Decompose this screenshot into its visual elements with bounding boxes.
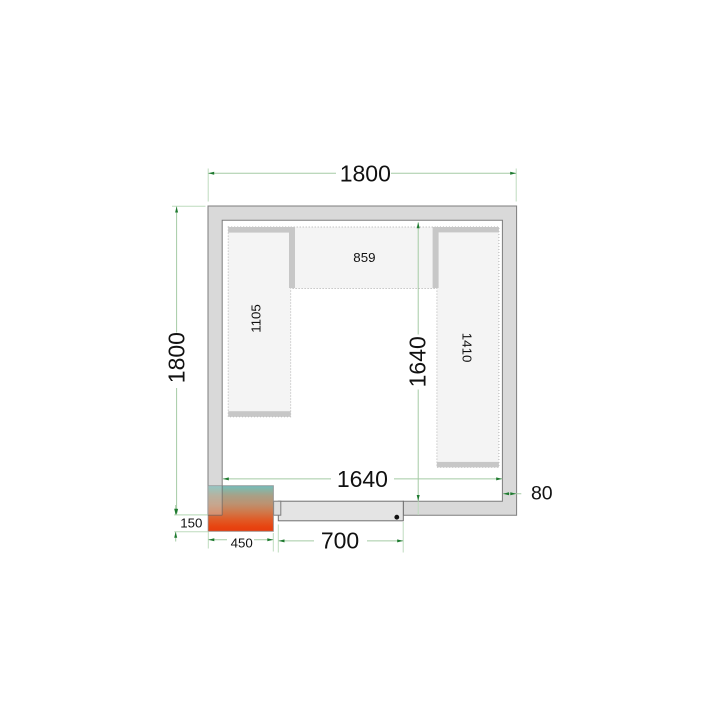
svg-text:859: 859 [353, 250, 375, 265]
svg-text:1410: 1410 [460, 333, 475, 363]
svg-text:1105: 1105 [249, 304, 264, 333]
svg-text:80: 80 [531, 483, 553, 505]
svg-text:700: 700 [321, 528, 359, 554]
svg-text:1640: 1640 [337, 466, 388, 492]
svg-text:450: 450 [231, 536, 253, 551]
svg-text:1640: 1640 [405, 336, 431, 387]
svg-text:1800: 1800 [340, 160, 391, 186]
svg-text:150: 150 [180, 516, 202, 531]
svg-text:1800: 1800 [163, 332, 189, 383]
